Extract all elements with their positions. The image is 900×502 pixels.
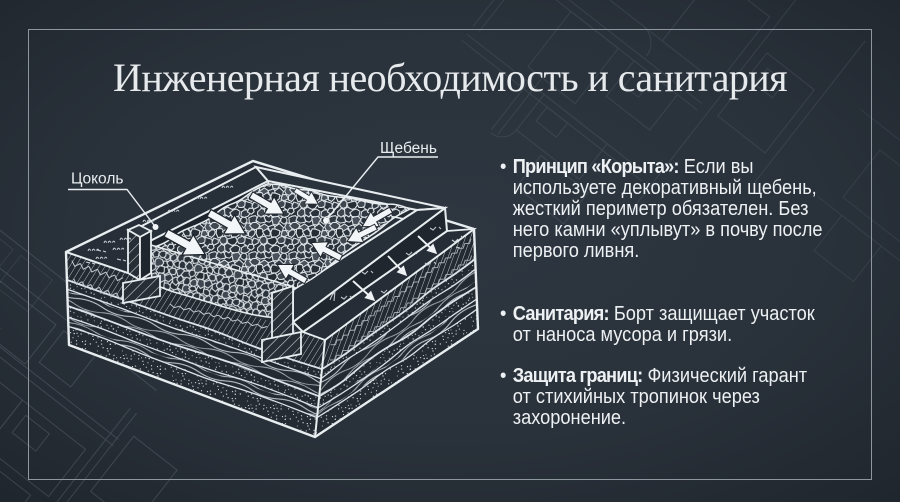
svg-text:Цоколь: Цоколь <box>71 171 123 188</box>
svg-text:Щебень: Щебень <box>380 140 437 157</box>
